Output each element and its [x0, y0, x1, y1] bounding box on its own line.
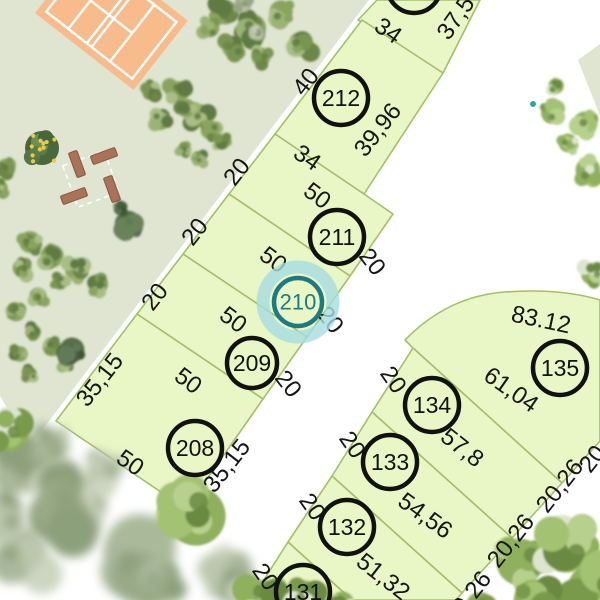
plot-number: 209 [233, 350, 271, 376]
plot-number: 131 [284, 579, 322, 600]
plot-marker-210[interactable]: 210 [263, 267, 333, 337]
plot-number: 210 [280, 290, 317, 315]
plot-number: 133 [371, 449, 409, 475]
survey-point-dot [530, 101, 536, 107]
map-canvas: 3437,54039,963450202020502020502035,1550… [0, 0, 600, 600]
site-plan-map: 3437,54039,963450202020502020502035,1550… [0, 0, 600, 600]
plot-number: 212 [322, 85, 360, 111]
map-extras [530, 101, 536, 107]
plot-number: 208 [176, 435, 214, 461]
plot-number: 211 [319, 224, 356, 250]
plot-number: 134 [413, 392, 452, 418]
plot-number: 135 [541, 355, 579, 381]
plot-number: 132 [328, 514, 366, 540]
